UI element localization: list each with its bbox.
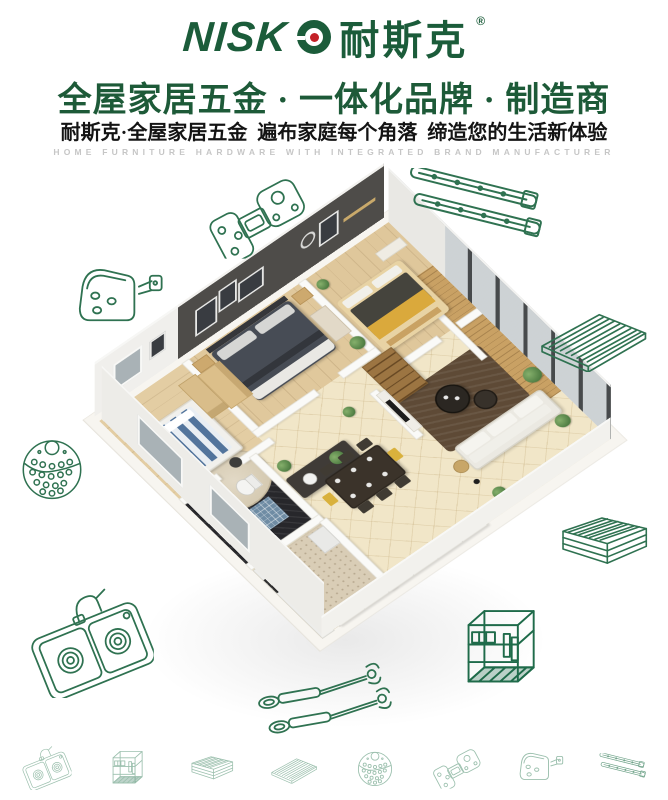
wall-art <box>195 296 217 338</box>
wall-art <box>218 279 236 313</box>
brand-logo-latin: NISK <box>181 13 289 61</box>
wall-shelf <box>343 197 375 222</box>
concealed-hinge-icon <box>205 172 310 262</box>
round-basket-icon <box>14 430 90 506</box>
brand-logo-red-dot <box>310 33 319 42</box>
drawer-slide-icon <box>596 746 648 790</box>
footer-icon-strip <box>0 740 668 796</box>
english-caption: HOME FURNITURE HARDWARE WITH INTEGRATED … <box>0 147 668 157</box>
wall-art <box>238 266 264 303</box>
drawer-slide-icon <box>398 168 550 252</box>
wall-art <box>319 210 339 248</box>
wire-shelf-icon <box>267 746 319 790</box>
brand-logo-chinese: 耐斯克 <box>339 8 468 66</box>
sub-headline: 耐斯克·全屋家居五金 遍布家庭每个角落 缔造您的生活新体验 <box>0 116 668 145</box>
brand-logo-o-icon <box>297 20 331 54</box>
wire-basket-icon <box>185 746 237 790</box>
round-basket-icon <box>349 746 401 790</box>
gas-strut-icon <box>258 645 408 737</box>
brand-logo: NISK 耐斯克 ® <box>0 12 668 62</box>
corner-bracket-icon <box>68 258 168 338</box>
double-sink-icon <box>26 588 154 698</box>
registered-trademark-mark: ® <box>476 14 485 28</box>
double-sink-icon <box>20 746 72 790</box>
wire-basket-icon <box>548 510 656 572</box>
corner-bracket-icon <box>514 746 566 790</box>
wire-organizer-icon <box>458 598 546 698</box>
wire-organizer-icon <box>102 746 154 790</box>
poster-page: NISK 耐斯克 ® 全屋家居五金 · 一体化品牌 · 制造商 耐斯克·全屋家居… <box>0 0 668 800</box>
concealed-hinge-icon <box>431 746 483 790</box>
wire-shelf-icon <box>528 300 654 372</box>
main-headline: 全屋家居五金 · 一体化品牌 · 制造商 <box>0 72 668 121</box>
